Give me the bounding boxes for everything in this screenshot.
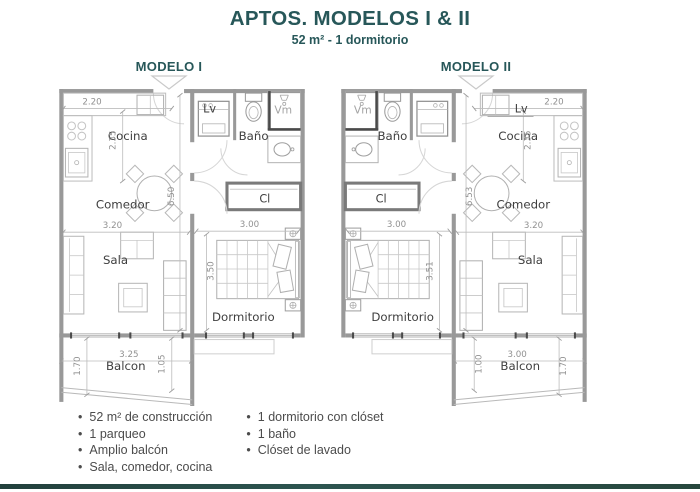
dim-dorm-depth: 3.51 [425, 261, 435, 280]
feature-item: 52 m² de construcción [78, 410, 212, 425]
room-label-vm: Vm [354, 104, 372, 117]
feature-item: 1 dormitorio con clóset [246, 410, 383, 425]
dim-unit-depth: 6.50 [167, 187, 177, 206]
dim-balcony-inner: 1.00 [474, 354, 484, 373]
dim-balcony-width: 3.25 [119, 350, 138, 360]
model-label-i: MODELO I [136, 59, 203, 74]
room-label-dormitorio: Dormitorio [212, 310, 275, 324]
page-subtitle: 52 m² - 1 dormitorio [0, 33, 700, 47]
dim-kitchen-width: 2.20 [544, 97, 563, 107]
floorplan-modelo-i: CocinaComedorSalaBalconDormitorioBañoLvV… [57, 87, 307, 406]
plan-head-modelo-i: MODELO I [44, 59, 294, 87]
room-label-closet: Cl [376, 193, 387, 206]
dim-dorm-width: 3.00 [240, 220, 259, 230]
room-label-sala: Sala [103, 253, 128, 267]
feature-lists: 52 m² de construcción 1 parqueo Amplio b… [78, 408, 700, 476]
feature-list-right: 1 dormitorio con clóset 1 baño Clóset de… [246, 408, 383, 476]
feature-item: Clóset de lavado [246, 443, 383, 458]
dim-comedor-width: 3.20 [103, 221, 122, 231]
room-label-comedor: Comedor [497, 198, 551, 212]
footer-accent-bar [0, 484, 700, 490]
dim-kitchen-depth: 2.35 [523, 130, 533, 149]
room-label-lavadora: Lv [515, 103, 528, 116]
room-label-lavadora: Lv [203, 103, 216, 116]
pointer-triangle-icon [150, 75, 188, 91]
dim-kitchen-depth: 2.35 [109, 130, 119, 149]
plan-modelo-ii: MODELO II CocinaComedorSalaBalconDormito… [339, 59, 589, 406]
room-label-dormitorio: Dormitorio [371, 310, 434, 324]
room-label-bano: Baño [377, 129, 407, 143]
room-label-bano: Baño [239, 129, 269, 143]
room-label-vm: Vm [274, 104, 292, 117]
floorplan-drawing: CocinaComedorSalaBalconDormitorioBañoLvV… [341, 89, 586, 406]
floorplan-modelo-ii: CocinaComedorSalaBalconDormitorioBañoLvV… [339, 87, 589, 406]
feature-item: 1 baño [246, 427, 383, 442]
dim-kitchen-width: 2.20 [82, 97, 101, 107]
dim-unit-depth: 6.53 [465, 187, 475, 206]
page-header: APTOS. MODELOS I & II 52 m² - 1 dormitor… [0, 0, 700, 47]
model-label-ii: MODELO II [441, 59, 512, 74]
plan-modelo-i: MODELO I CocinaComedorSalaBalconDormitor… [57, 59, 307, 406]
plan-head-modelo-ii: MODELO II [351, 59, 601, 87]
room-label-sala: Sala [518, 253, 543, 267]
dim-balcony-side: 1.70 [559, 356, 569, 375]
room-label-balcon: Balcon [500, 359, 540, 373]
dim-dorm-depth: 3.50 [207, 261, 217, 280]
plans-row: MODELO I CocinaComedorSalaBalconDormitor… [0, 59, 700, 406]
pointer-triangle-icon [457, 75, 495, 91]
dim-dorm-width: 3.00 [387, 220, 406, 230]
floorplan-drawing: CocinaComedorSalaBalconDormitorioBañoLvV… [59, 89, 304, 406]
room-label-closet: Cl [259, 193, 270, 206]
feature-item: Amplio balcón [78, 443, 212, 458]
page-title: APTOS. MODELOS I & II [0, 7, 700, 31]
dim-comedor-width: 3.20 [524, 221, 543, 231]
room-label-comedor: Comedor [96, 198, 150, 212]
dim-balcony-width: 3.00 [507, 350, 526, 360]
dim-balcony-inner: 1.05 [158, 354, 168, 373]
feature-item: Sala, comedor, cocina [78, 460, 212, 475]
room-label-balcon: Balcon [106, 359, 146, 373]
feature-list-left: 52 m² de construcción 1 parqueo Amplio b… [78, 408, 212, 476]
dim-balcony-side: 1.70 [73, 356, 83, 375]
feature-item: 1 parqueo [78, 427, 212, 442]
